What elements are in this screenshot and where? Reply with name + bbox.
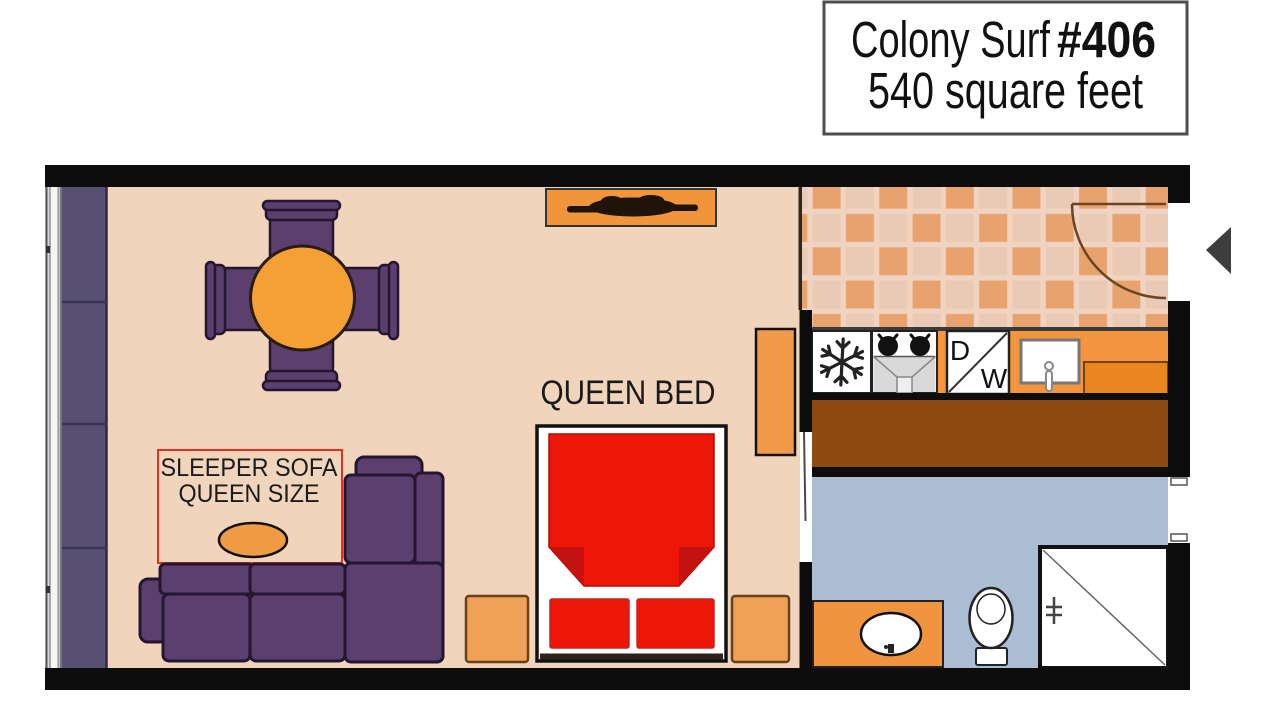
svg-text:QUEEN BED: QUEEN BED bbox=[541, 374, 716, 412]
svg-text:SLEEPER SOFA: SLEEPER SOFA bbox=[161, 454, 338, 482]
svg-text:W: W bbox=[981, 363, 1008, 394]
svg-text:540 square feet: 540 square feet bbox=[868, 62, 1143, 119]
svg-text:D: D bbox=[950, 335, 970, 366]
svg-text:Colony Surf: Colony Surf bbox=[851, 11, 1051, 68]
svg-text:#406: #406 bbox=[1057, 11, 1156, 68]
svg-text:QUEEN SIZE: QUEEN SIZE bbox=[179, 480, 320, 508]
